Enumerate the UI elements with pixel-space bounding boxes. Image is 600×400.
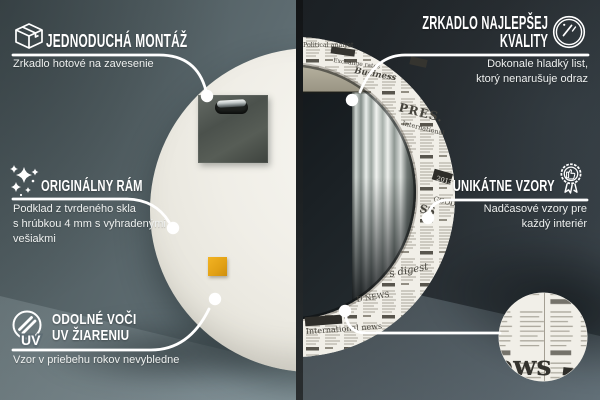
feature-subtitle-unique-patterns: Nadčasové vzory pre každý interiér bbox=[484, 202, 587, 232]
panel-divider bbox=[296, 0, 303, 400]
award-badge-icon bbox=[555, 159, 587, 204]
product-feature-infographic: Political analyst Exchange rates Busines… bbox=[0, 0, 600, 400]
orange-sticker bbox=[208, 257, 227, 276]
feature-title-unique-patterns: UNIKÁTNE VZORY bbox=[453, 179, 555, 195]
mirror-shine-icon bbox=[551, 14, 587, 55]
title-line: ZRKADLO NAJLEPŠEJ bbox=[422, 14, 548, 32]
package-box-icon bbox=[12, 21, 46, 56]
uv-icon-label: UV bbox=[21, 332, 41, 348]
feature-subtitle-easy-mounting: Zrkadlo hotové na zavesenie bbox=[13, 57, 154, 72]
feature-title-easy-mounting: JEDNODUCHÁ MONTÁŽ bbox=[46, 32, 187, 50]
subtitle-line: každý interiér bbox=[484, 217, 587, 232]
title-line: KVALITY bbox=[422, 32, 548, 50]
subtitle-line: vešiakmi bbox=[13, 232, 166, 247]
title-line: ODOLNÉ VOČI bbox=[52, 312, 136, 328]
subtitle-line: ktorý nenarušuje odraz bbox=[476, 72, 588, 87]
feature-subtitle-uv-resistant: Vzor v priebehu rokov nevybledne bbox=[13, 353, 179, 368]
feature-subtitle-best-quality: Dokonale hladký list, ktorý nenarušuje o… bbox=[476, 57, 588, 87]
subtitle-line: Dokonale hladký list, bbox=[476, 57, 588, 72]
feature-title-uv-resistant: ODOLNÉ VOČI UV ŽIARENIU bbox=[52, 312, 136, 344]
subtitle-line: Nadčasové vzory pre bbox=[484, 202, 587, 217]
feature-title-best-quality: ZRKADLO NAJLEPŠEJ KVALITY bbox=[422, 14, 548, 50]
feature-title-original-frame: ORIGINÁLNY RÁM bbox=[41, 179, 143, 195]
title-line: UV ŽIARENIU bbox=[52, 328, 136, 344]
feature-subtitle-original-frame: Podklad z tvrdeného skla s hrúbkou 4 mm … bbox=[13, 202, 166, 247]
hanger-plate bbox=[198, 95, 268, 163]
uv-sun-icon: UV bbox=[10, 308, 50, 353]
subtitle-line: s hrúbkou 4 mm s vyhradenými bbox=[13, 217, 166, 232]
sparkles-icon bbox=[8, 164, 42, 203]
subtitle-line: Podklad z tvrdeného skla bbox=[13, 202, 166, 217]
